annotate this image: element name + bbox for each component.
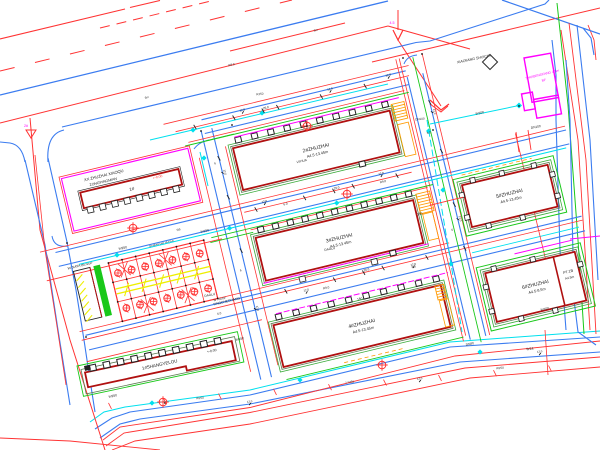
svg-text:W250: W250	[496, 366, 505, 371]
svg-text:R250: R250	[256, 92, 264, 97]
svg-text:12.0: 12.0	[537, 349, 543, 354]
svg-text:12.0: 12.0	[417, 376, 423, 381]
svg-text:W14: W14	[526, 347, 534, 352]
svg-text:2#: 2#	[24, 124, 28, 128]
svg-text:4.5: 4.5	[390, 21, 395, 25]
svg-text:W250: W250	[196, 396, 205, 401]
svg-text:12.0: 12.0	[247, 399, 253, 404]
